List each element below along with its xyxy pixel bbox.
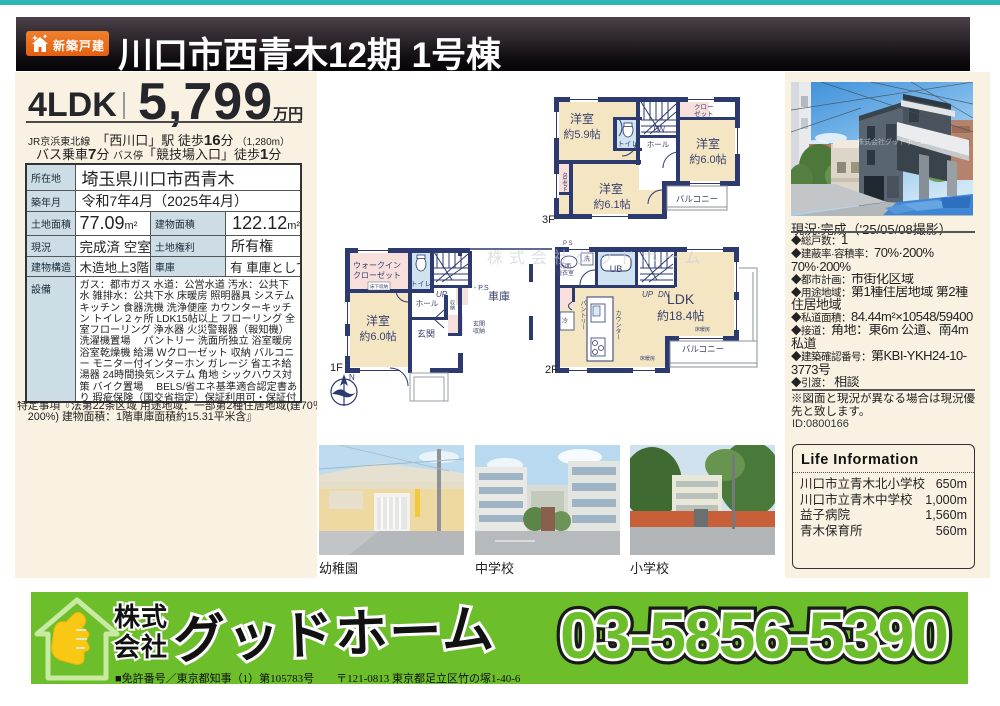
svg-text:UP: UP	[642, 290, 654, 299]
svg-text:ホール: ホール	[416, 299, 439, 308]
svg-text:会社: 会社	[114, 632, 168, 662]
svg-text:約6.0帖: 約6.0帖	[359, 329, 396, 343]
svg-text:DN: DN	[653, 125, 665, 134]
svg-text:車庫: 車庫	[488, 289, 510, 303]
svg-text:バルコニー: バルコニー	[676, 194, 718, 204]
svg-text:洋室: 洋室	[570, 111, 594, 126]
svg-text:約6.1帖: 約6.1帖	[593, 197, 630, 211]
svg-text:クロー: クロー	[694, 103, 714, 111]
svg-text:- P.S: - P.S	[474, 285, 489, 292]
svg-text:3F: 3F	[542, 214, 555, 226]
svg-text:収納: 収納	[449, 299, 455, 311]
svg-text:ウォークイン: ウォークイン	[353, 261, 401, 270]
svg-text:洋室: 洋室	[696, 136, 720, 151]
svg-text:クローゼット: クローゼット	[561, 172, 568, 193]
svg-text:2F: 2F	[545, 364, 558, 376]
svg-text:床暖房: 床暖房	[695, 326, 710, 333]
svg-text:1F: 1F	[330, 362, 343, 374]
svg-text:脱衣室: 脱衣室	[556, 269, 574, 277]
svg-text:クローゼット: クローゼット	[353, 270, 401, 280]
svg-text:床下収納: 床下収納	[370, 283, 388, 290]
svg-text:ホール: ホール	[647, 140, 670, 149]
svg-text:03-5856-5390: 03-5856-5390	[560, 598, 947, 672]
svg-text:LDK: LDK	[667, 291, 695, 307]
svg-text:洋室: 洋室	[599, 181, 623, 196]
svg-text:ゼット: ゼット	[694, 109, 714, 118]
svg-text:トイレ: トイレ	[618, 141, 639, 148]
svg-text:収納: 収納	[473, 327, 485, 335]
svg-text:バルコニー: バルコニー	[682, 344, 724, 354]
svg-text:カウンター: カウンター	[614, 310, 621, 340]
svg-text:パントリー: パントリー	[579, 300, 586, 330]
svg-text:約6.0帖: 約6.0帖	[689, 152, 726, 166]
svg-text:UP: UP	[436, 290, 448, 299]
svg-text:冷: 冷	[562, 317, 568, 325]
svg-text:玄関: 玄関	[473, 320, 485, 328]
svg-text:N: N	[349, 373, 355, 382]
svg-text:洋室: 洋室	[366, 313, 390, 328]
svg-text:床暖房: 床暖房	[640, 355, 655, 362]
svg-text:グッドホーム: グッドホーム	[172, 601, 496, 670]
svg-text:約18.4帖: 約18.4帖	[657, 308, 704, 323]
svg-text:トイレ: トイレ	[411, 281, 432, 288]
svg-text:株式: 株式	[114, 602, 168, 632]
svg-text:玄関: 玄関	[417, 328, 435, 339]
svg-text:約5.9帖: 約5.9帖	[563, 127, 600, 141]
svg-text:株式会社グッドホーム: 株式会社グッドホーム	[857, 137, 927, 146]
